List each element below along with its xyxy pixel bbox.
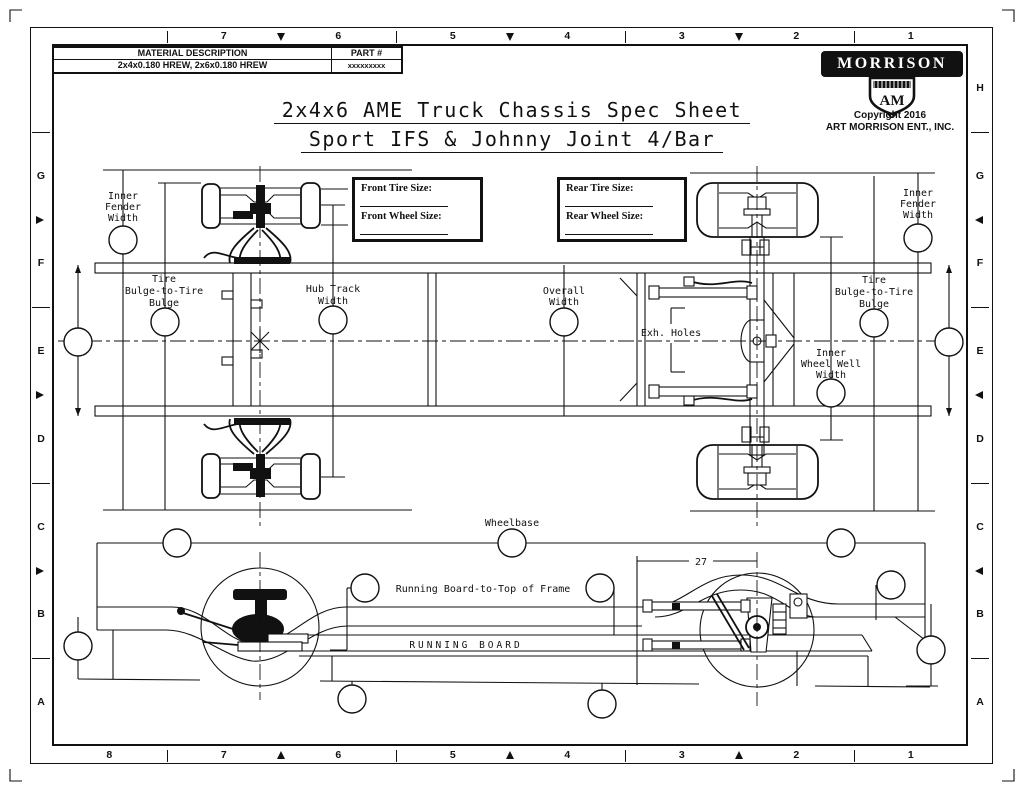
zone-tick xyxy=(971,483,989,484)
center-mark-arrow xyxy=(735,751,743,759)
zone-row: D xyxy=(969,395,991,483)
rear-wheel-size-label: Rear Wheel Size: xyxy=(566,211,643,222)
zone-strip-bottom: 8 7 6 5 4 3 2 1 xyxy=(52,748,968,764)
zone-tick xyxy=(32,307,50,308)
center-mark-arrow xyxy=(36,567,44,575)
zone-col: 8 xyxy=(52,748,167,764)
sheet-title-line2: Sport IFS & Johnny Joint 4/Bar xyxy=(301,127,723,153)
zone-tick xyxy=(854,31,855,43)
zone-row: E xyxy=(969,307,991,395)
center-mark-arrow xyxy=(975,216,983,224)
zone-tick xyxy=(971,658,989,659)
zone-tick xyxy=(854,750,855,762)
rear-tire-size-field[interactable] xyxy=(565,206,653,207)
zone-col: 4 xyxy=(510,29,625,45)
zone-col: 2 xyxy=(739,29,854,45)
zone-tick xyxy=(625,31,626,43)
front-wheel-size-label: Front Wheel Size: xyxy=(361,211,442,222)
material-table: MATERIAL DESCRIPTION PART # 2x4x0.180 HR… xyxy=(52,46,403,74)
center-mark-arrow xyxy=(277,33,285,41)
sheet-title-line1: 2x4x6 AME Truck Chassis Spec Sheet xyxy=(274,98,750,124)
zone-col: 3 xyxy=(625,29,740,45)
center-mark-arrow xyxy=(735,33,743,41)
zone-row: F xyxy=(969,220,991,308)
company-line: ART MORRISON ENT., INC. xyxy=(790,122,990,133)
center-mark-arrow xyxy=(975,567,983,575)
zone-row: B xyxy=(30,571,52,659)
zone-row: D xyxy=(30,395,52,483)
center-mark-arrow xyxy=(506,33,514,41)
rear-tire-spec-box: Rear Tire Size: Rear Wheel Size: xyxy=(557,177,687,242)
zone-col: 6 xyxy=(281,29,396,45)
material-description-header: MATERIAL DESCRIPTION xyxy=(54,48,332,59)
zone-tick xyxy=(167,750,168,762)
zone-row: E xyxy=(30,307,52,395)
front-tire-size-label: Front Tire Size: xyxy=(361,183,432,194)
material-table-value-row: 2x4x0.180 HREW, 2x6x0.180 HREW xxxxxxxxx xyxy=(54,60,401,72)
zone-tick xyxy=(396,750,397,762)
zone-col: 1 xyxy=(854,748,969,764)
spec-sheet-page: Inner Fender Width Tire Bulge-to-Tire Bu… xyxy=(0,0,1024,791)
center-mark-arrow xyxy=(277,751,285,759)
front-tire-size-field[interactable] xyxy=(360,206,448,207)
part-number-header: PART # xyxy=(332,48,401,59)
zone-row: F xyxy=(30,220,52,308)
zone-tick xyxy=(396,31,397,43)
part-number-value: xxxxxxxxx xyxy=(332,60,401,72)
material-description-value: 2x4x0.180 HREW, 2x6x0.180 HREW xyxy=(54,60,332,72)
copyright-line: Copyright 2016 xyxy=(790,110,990,121)
zone-strip-top: 7 6 5 4 3 2 1 xyxy=(52,29,968,45)
morrison-logo: MORRISON xyxy=(821,51,963,77)
zone-col: 6 xyxy=(281,748,396,764)
zone-tick xyxy=(32,483,50,484)
zone-col: 2 xyxy=(739,748,854,764)
rear-tire-size-label: Rear Tire Size: xyxy=(566,183,633,194)
am-monogram: AM xyxy=(880,93,905,109)
zone-tick xyxy=(32,658,50,659)
zone-col: 4 xyxy=(510,748,625,764)
zone-row: C xyxy=(30,483,52,571)
zone-col: 1 xyxy=(854,29,969,45)
material-table-header-row: MATERIAL DESCRIPTION PART # xyxy=(54,48,401,60)
zone-row: C xyxy=(969,483,991,571)
zone-col: 7 xyxy=(167,748,282,764)
rear-wheel-size-field[interactable] xyxy=(565,234,653,235)
zone-col: 3 xyxy=(625,748,740,764)
zone-row: B xyxy=(969,571,991,659)
front-wheel-size-field[interactable] xyxy=(360,234,448,235)
zone-col: 7 xyxy=(167,29,282,45)
zone-row: A xyxy=(969,658,991,746)
zone-row: A xyxy=(30,658,52,746)
center-mark-arrow xyxy=(506,751,514,759)
morrison-logo-text: MORRISON xyxy=(837,55,947,73)
zone-tick xyxy=(167,31,168,43)
zone-col: 5 xyxy=(396,748,511,764)
zone-tick xyxy=(625,750,626,762)
center-mark-arrow xyxy=(36,391,44,399)
zone-col xyxy=(52,29,167,45)
front-tire-spec-box: Front Tire Size: Front Wheel Size: xyxy=(352,177,483,242)
center-mark-arrow xyxy=(36,216,44,224)
center-mark-arrow xyxy=(975,391,983,399)
zone-tick xyxy=(971,307,989,308)
zone-col: 5 xyxy=(396,29,511,45)
